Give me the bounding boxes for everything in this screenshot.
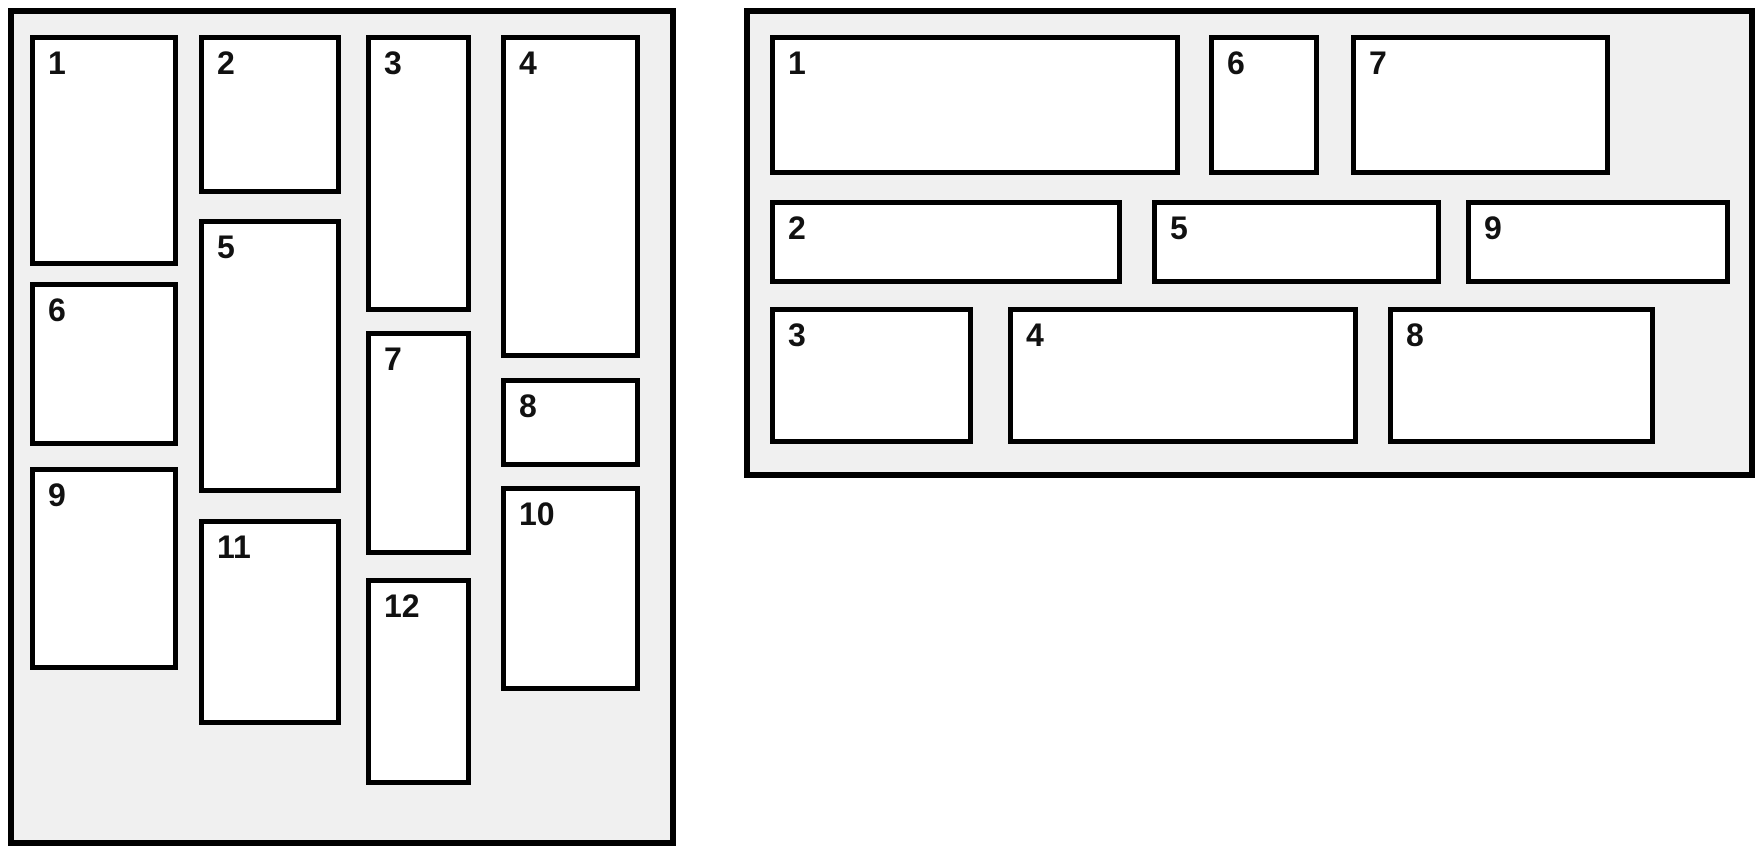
masonry-demo-canvas: 123456789101112 123456789 bbox=[0, 0, 1755, 852]
card-number-label: 4 bbox=[506, 40, 635, 83]
card-number-label: 1 bbox=[35, 40, 173, 83]
card-number-label: 1 bbox=[775, 40, 1175, 83]
card: 3 bbox=[770, 307, 973, 444]
card: 2 bbox=[199, 35, 341, 194]
card-number-label: 3 bbox=[775, 312, 968, 355]
card-number-label: 7 bbox=[1356, 40, 1605, 83]
card-number-label: 7 bbox=[371, 336, 466, 379]
card-number-label: 6 bbox=[1214, 40, 1314, 83]
card: 6 bbox=[30, 282, 178, 446]
card-number-label: 11 bbox=[204, 524, 336, 567]
card: 5 bbox=[199, 219, 341, 493]
card-number-label: 2 bbox=[775, 205, 1117, 248]
card: 10 bbox=[501, 486, 640, 691]
card: 8 bbox=[501, 378, 640, 467]
card: 5 bbox=[1152, 200, 1441, 284]
card: 2 bbox=[770, 200, 1122, 284]
card-number-label: 5 bbox=[1157, 205, 1436, 248]
card-number-label: 2 bbox=[204, 40, 336, 83]
card: 4 bbox=[501, 35, 640, 358]
card-number-label: 8 bbox=[506, 383, 635, 426]
card-number-label: 3 bbox=[371, 40, 466, 83]
card-number-label: 5 bbox=[204, 224, 336, 267]
card: 11 bbox=[199, 519, 341, 725]
card-number-label: 8 bbox=[1393, 312, 1650, 355]
card: 6 bbox=[1209, 35, 1319, 175]
card: 7 bbox=[366, 331, 471, 555]
card-number-label: 6 bbox=[35, 287, 173, 330]
card: 4 bbox=[1008, 307, 1358, 444]
card-number-label: 4 bbox=[1013, 312, 1353, 355]
masonry-rows-panel: 123456789 bbox=[744, 8, 1755, 478]
card-number-label: 12 bbox=[371, 583, 466, 626]
card: 3 bbox=[366, 35, 471, 312]
card-number-label: 10 bbox=[506, 491, 635, 534]
card: 1 bbox=[30, 35, 178, 266]
card-number-label: 9 bbox=[35, 472, 173, 515]
card: 7 bbox=[1351, 35, 1610, 175]
card-number-label: 9 bbox=[1471, 205, 1725, 248]
masonry-columns-panel: 123456789101112 bbox=[8, 8, 676, 846]
card: 8 bbox=[1388, 307, 1655, 444]
card: 9 bbox=[30, 467, 178, 670]
card: 12 bbox=[366, 578, 471, 785]
card: 1 bbox=[770, 35, 1180, 175]
card: 9 bbox=[1466, 200, 1730, 284]
